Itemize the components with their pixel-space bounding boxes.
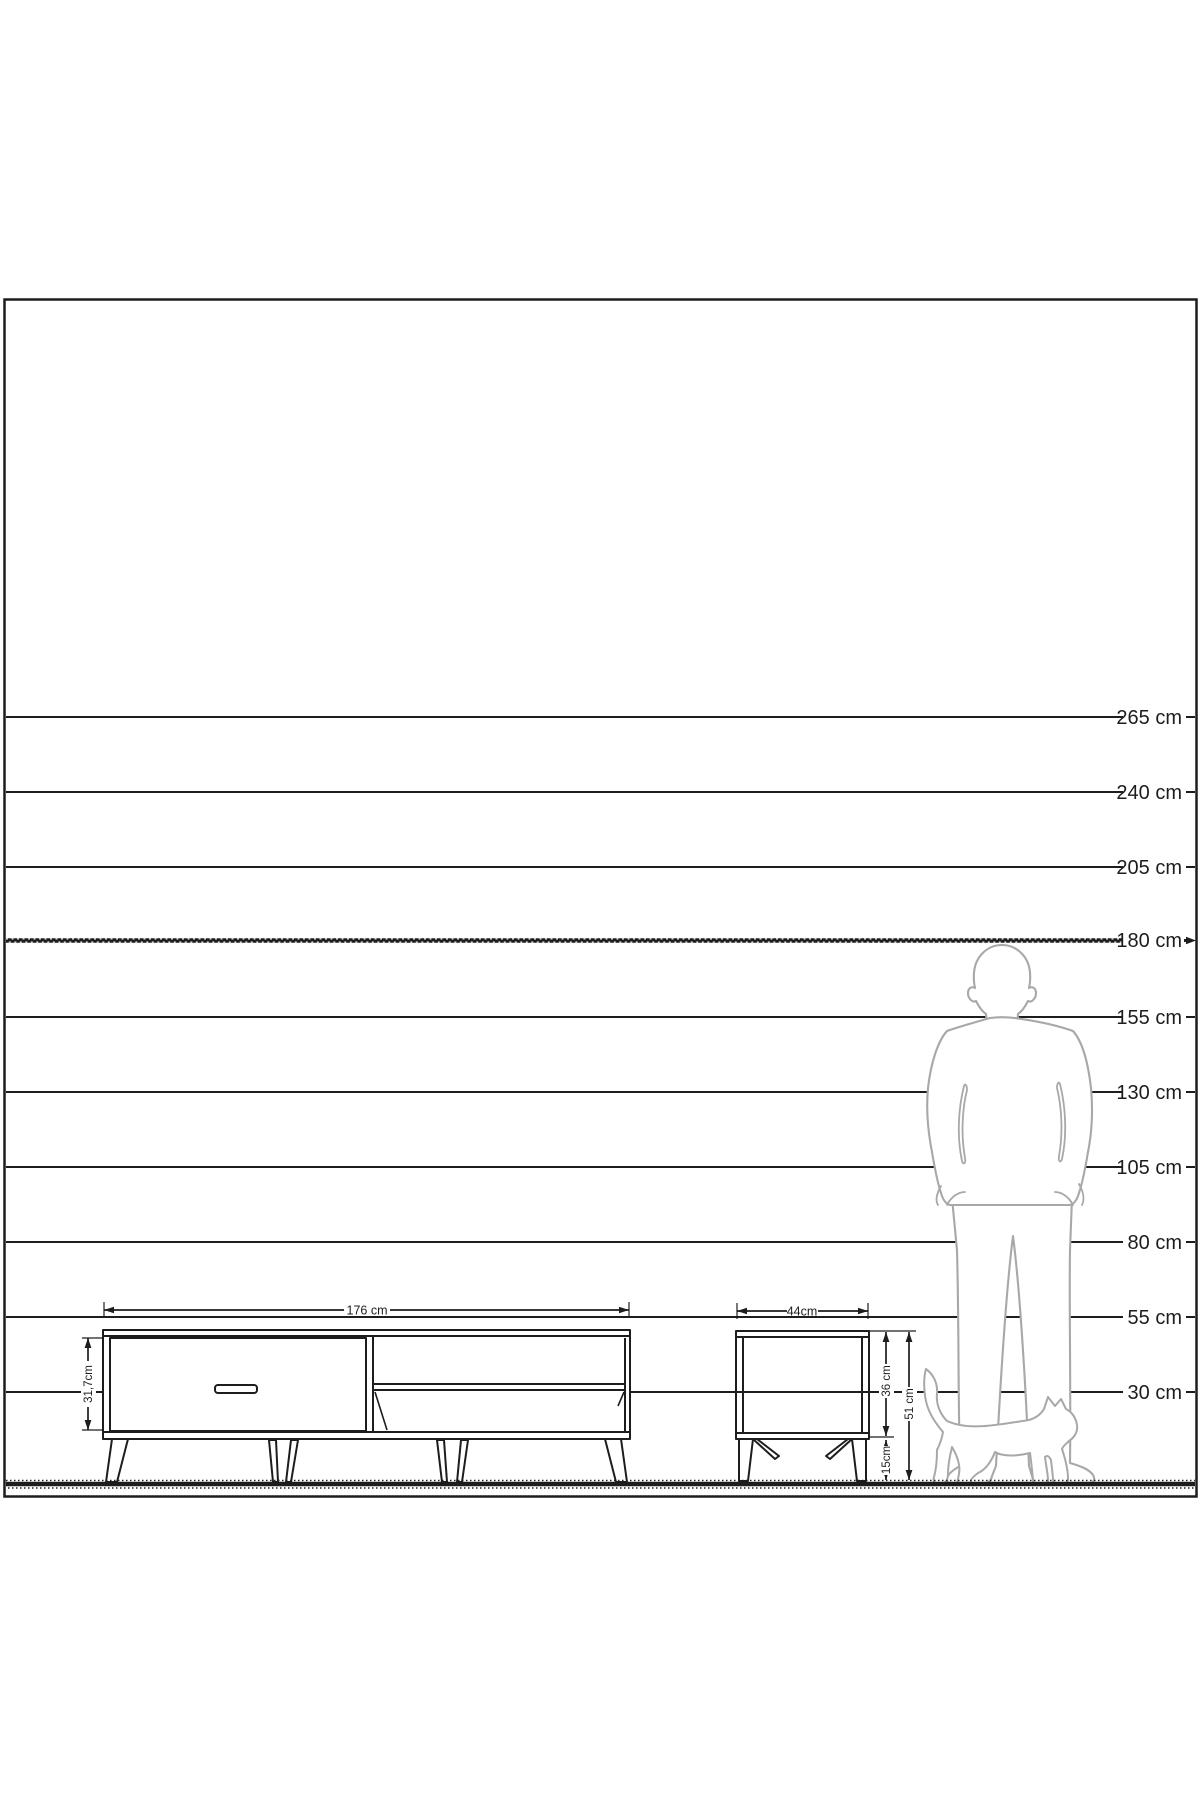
height-label-155cm: 155 cm bbox=[1116, 1007, 1182, 1029]
tv-stand-width-label: 176 cm bbox=[347, 1304, 388, 1318]
height-label-265cm: 265 cm bbox=[1116, 707, 1182, 729]
furniture-scale-diagram: 265 cm 240 cm 205 cm 180 cm 155 cm bbox=[0, 0, 1200, 1800]
man-jacket bbox=[927, 1017, 1092, 1205]
tv-stand-height-label: 31,7cm bbox=[83, 1365, 95, 1403]
diagram-page: 265 cm 240 cm 205 cm 180 cm 155 cm bbox=[0, 0, 1200, 1800]
height-label-205cm: 205 cm bbox=[1116, 857, 1182, 879]
side-table-total-height-label: 51 cm bbox=[904, 1388, 916, 1419]
height-label-30cm: 30 cm bbox=[1128, 1382, 1182, 1404]
height-label-130cm: 130 cm bbox=[1116, 1082, 1182, 1104]
side-table-width-label: 44cm bbox=[787, 1305, 818, 1319]
height-label-105cm: 105 cm bbox=[1116, 1157, 1182, 1179]
height-label-240cm: 240 cm bbox=[1116, 782, 1182, 804]
dim-side-table-leg-height: 15cm bbox=[879, 1440, 894, 1480]
side-table-body-height-label: 36 cm bbox=[881, 1365, 893, 1396]
height-label-55cm: 55 cm bbox=[1128, 1307, 1182, 1329]
side-table-leg-height-label: 15cm bbox=[881, 1446, 893, 1474]
height-label-80cm: 80 cm bbox=[1128, 1232, 1182, 1254]
height-label-180cm: 180 cm bbox=[1116, 930, 1182, 952]
tv-stand-drawer-handle bbox=[215, 1385, 257, 1393]
